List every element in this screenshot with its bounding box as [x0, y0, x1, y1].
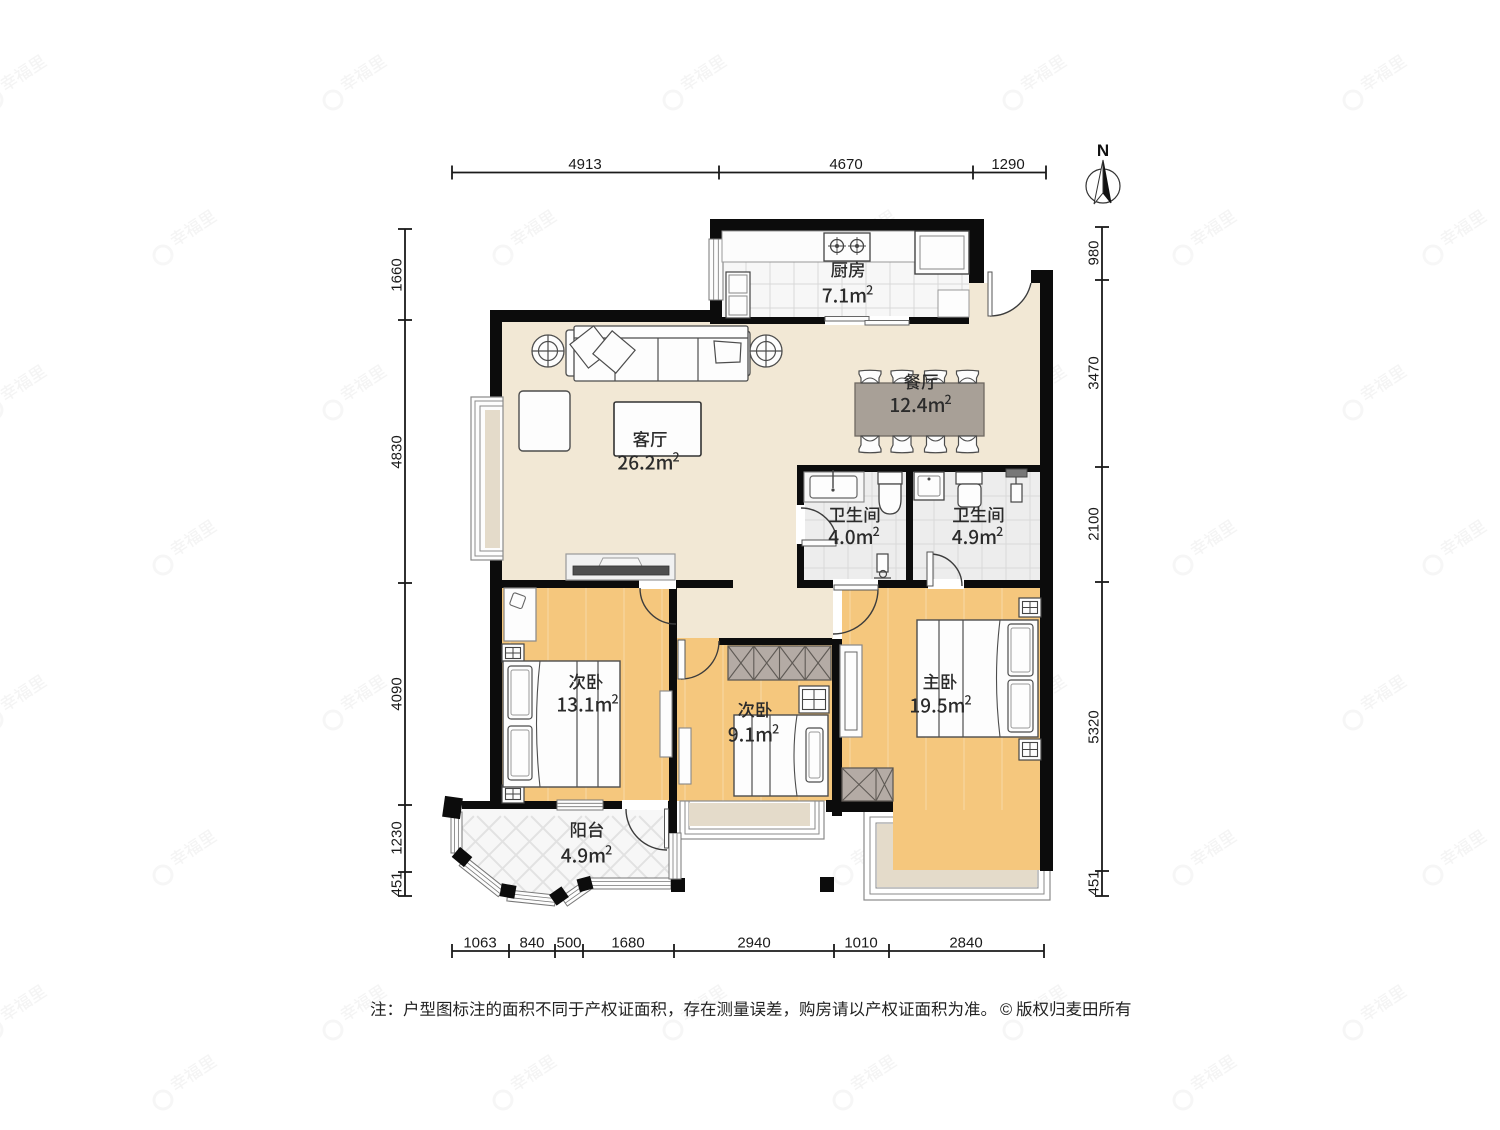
- svg-text:©: ©: [1000, 1001, 1012, 1019]
- svg-text:1063: 1063: [463, 935, 496, 952]
- svg-text:1290: 1290: [991, 156, 1024, 173]
- svg-text:451: 451: [389, 871, 406, 896]
- svg-text:2100: 2100: [1086, 507, 1103, 540]
- svg-text:2840: 2840: [949, 935, 982, 952]
- svg-text:1660: 1660: [389, 258, 406, 291]
- svg-text:2940: 2940: [737, 935, 770, 952]
- svg-text:4913: 4913: [568, 156, 601, 173]
- svg-text:1680: 1680: [611, 935, 644, 952]
- svg-text:5320: 5320: [1086, 710, 1103, 743]
- svg-text:N: N: [1097, 141, 1109, 160]
- svg-text:4090: 4090: [389, 677, 406, 710]
- svg-text:3470: 3470: [1086, 356, 1103, 389]
- svg-text:500: 500: [556, 935, 581, 952]
- svg-text:4830: 4830: [389, 435, 406, 468]
- svg-text:1230: 1230: [389, 821, 406, 854]
- svg-text:1010: 1010: [844, 935, 877, 952]
- svg-text:451: 451: [1086, 870, 1103, 895]
- svg-text:4670: 4670: [829, 156, 862, 173]
- svg-text:840: 840: [519, 935, 544, 952]
- svg-text:980: 980: [1086, 240, 1103, 265]
